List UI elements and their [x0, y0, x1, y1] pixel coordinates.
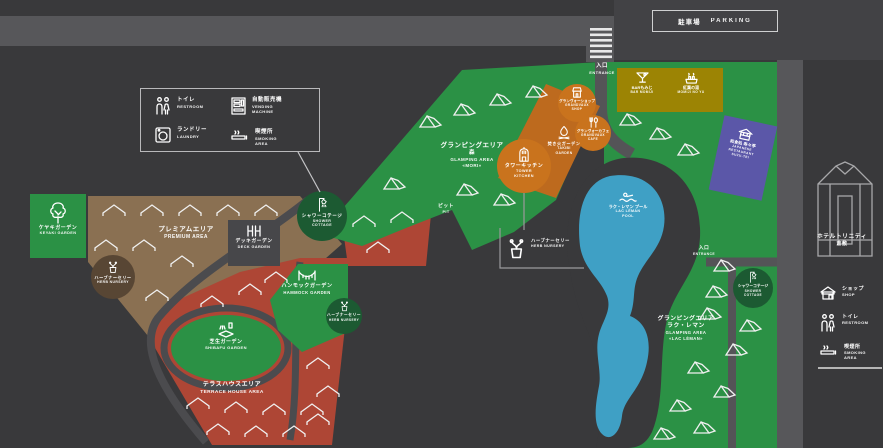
premium-en: PREMIUM AREA — [138, 234, 234, 240]
herb-nursery-brown-label: ハーブナーセリー HERB NURSERY — [89, 261, 137, 285]
legend-right-shop: ショップ SHOP — [820, 286, 864, 300]
restroom-icon — [820, 314, 836, 332]
cutlery-icon — [588, 117, 599, 128]
deck-en: DECK GARDEN — [228, 245, 280, 250]
tower-icon — [517, 147, 531, 162]
legend-smoking-jp: 喫煙所 — [255, 129, 285, 136]
bar-en: BAR MOMIJI — [620, 90, 664, 94]
hotel-jp2: 倉敷 — [804, 241, 880, 247]
shopfront-icon — [571, 87, 583, 98]
grandvaux-shop-label: グランヴォーショップ GRANDVAUX SHOP — [553, 87, 601, 111]
shower-cottage-right-label: シャワーコテージ SHOWER COTTAGE — [729, 271, 777, 297]
legend-pointer-line — [298, 152, 320, 192]
keyaki-garden-label: ケヤキガーデン KEYAKI GARDEN — [30, 202, 86, 236]
legend-item-laundry: ランドリー LAUNDRY — [155, 127, 207, 143]
pool-en2: POOL — [600, 214, 656, 218]
legend-restroom-en: RESTROOM — [177, 104, 203, 109]
shibafu-garden-label: 芝生ガーデン SHIBAFU GARDEN — [194, 322, 258, 350]
terrace-jp: テラスハウスエリア — [188, 382, 276, 390]
legend-right-restroom: トイレ RESTROOM — [820, 314, 868, 332]
smoking-icon — [820, 344, 838, 356]
deck-garden-label: デッキガーデン DECK GARDEN — [228, 224, 280, 250]
hotel-label: ホテルトリニティ 倉敷 — [804, 234, 880, 247]
herb-pot-icon — [508, 238, 525, 260]
legend-right-restroom-en: RESTROOM — [842, 320, 868, 325]
parking-label: 駐車場 PARKING — [652, 10, 778, 32]
legend-laundry-en: LAUNDRY — [177, 134, 207, 139]
tower-en2: KITCHEN — [496, 174, 552, 179]
ashiyu-en: MOMIJI NO YU — [666, 90, 716, 94]
shop-icon — [820, 286, 836, 300]
cocktail-icon — [636, 72, 649, 84]
herb-nursery-callout: ハーブナーセリー HERB NURSERY — [508, 238, 570, 260]
legend-vending-jp: 自動販売機 — [252, 97, 310, 104]
legend-right-shop-en: SHOP — [842, 292, 864, 297]
parking-label-en: PARKING — [711, 18, 752, 24]
vending-machine-icon — [231, 97, 246, 115]
pool-label: ラク・レマン プール LAC LÉMAN POOL — [600, 192, 656, 218]
restroom-icon — [155, 97, 171, 115]
deck-chair-icon — [246, 224, 262, 238]
swimmer-icon — [619, 192, 637, 203]
shower-left-en2: COTTAGE — [296, 223, 348, 227]
herb-brown-en: HERB NURSERY — [89, 280, 137, 284]
entrance-top-en: ENTRANCE — [580, 70, 624, 75]
terrace-area-label: テラスハウスエリア TERRACE HOUSE AREA — [188, 382, 276, 395]
premium-jp: プレミアムエリア — [138, 226, 234, 234]
herb-nursery-green-label: ハーブナーセリー HERB NURSERY — [324, 301, 364, 322]
herb-callout-en: HERB NURSERY — [531, 244, 570, 248]
legend-right-smoking-en: SMOKING AREA — [844, 350, 876, 360]
pit-label: ピット PIT — [424, 204, 468, 215]
lacleman-en2: «LAC LÉMAN» — [646, 336, 726, 341]
gv-shop-en2: SHOP — [553, 107, 601, 111]
shower-cottage-left-label: シャワーコテージ SHOWER COTTAGE — [296, 197, 348, 228]
tree-icon — [48, 202, 68, 224]
glamping-lacleman-label: グランピングエリア ラク・レマン GLAMPING AREA «LAC LÉMA… — [646, 316, 726, 341]
legend-item-vending: 自動販売機 VENDING MACHINE — [231, 97, 310, 115]
takibi-en2: GARDEN — [540, 151, 588, 155]
entrance-right-en: ENTRANCE — [684, 252, 724, 256]
shower-icon — [316, 197, 329, 212]
gv-cafe-en2: CAFE — [569, 137, 617, 141]
legend-smoking-en: SMOKING AREA — [255, 136, 285, 146]
laundry-icon — [155, 127, 171, 143]
legend-left-box: トイレ RESTROOM 自動販売機 VENDING MACHINE ランドリー… — [140, 88, 320, 152]
legend-item-restroom: トイレ RESTROOM — [155, 97, 203, 115]
bar-momiji-label: BARもみじ BAR MOMIJI — [620, 72, 664, 94]
hammock-icon — [297, 266, 317, 282]
pit-en: PIT — [424, 210, 468, 215]
grass-picnic-icon — [217, 322, 235, 338]
momiji-no-yu-label: 紅葉の湯 MOMIJI NO YU — [666, 72, 716, 94]
lacleman-jp2: ラク・レマン — [646, 323, 726, 330]
map-base-graphics — [0, 0, 883, 448]
legend-restroom-jp: トイレ — [177, 97, 203, 104]
shower-icon — [748, 271, 758, 283]
shibafu-en: SHIBAFU GARDEN — [194, 345, 258, 350]
terrace-en: TERRACE HOUSE AREA — [188, 390, 276, 396]
parking-label-jp: 駐車場 — [678, 16, 701, 26]
hammock-en: HAMMOCK GARDEN — [266, 290, 348, 295]
keyaki-en: KEYAKI GARDEN — [30, 231, 86, 236]
herb-pot-icon — [339, 301, 350, 312]
legend-vending-en: VENDING MACHINE — [252, 104, 286, 114]
premium-area-label: プレミアムエリア PREMIUM AREA — [138, 226, 234, 240]
top-road — [0, 16, 612, 46]
right-road — [777, 60, 803, 448]
entrance-top-label: 入口 ENTRANCE — [580, 63, 624, 75]
footbath-icon — [685, 72, 698, 84]
facility-map: 駐車場 PARKING 入口 ENTRANCE トイレ RESTROOM 自動販… — [0, 0, 883, 448]
entrance-top-jp: 入口 — [580, 63, 624, 70]
shower-right-en2: COTTAGE — [729, 293, 777, 297]
legend-item-smoking: 喫煙所 SMOKING AREA — [231, 129, 285, 146]
herb-green-en: HERB NURSERY — [324, 318, 364, 322]
herb-pot-icon — [106, 261, 120, 274]
legend-right-smoking: 喫煙所 SMOKING AREA — [820, 344, 876, 360]
legend-laundry-jp: ランドリー — [177, 127, 207, 134]
grandvaux-cafe-label: グランヴォーカフェ GRANDVAUX CAFE — [569, 117, 617, 141]
smoking-icon — [231, 129, 249, 141]
entrance-right-label: 入口 ENTRANCE — [684, 246, 724, 256]
hammock-garden-label: ハンモックガーデン HAMMOCK GARDEN — [266, 266, 348, 295]
